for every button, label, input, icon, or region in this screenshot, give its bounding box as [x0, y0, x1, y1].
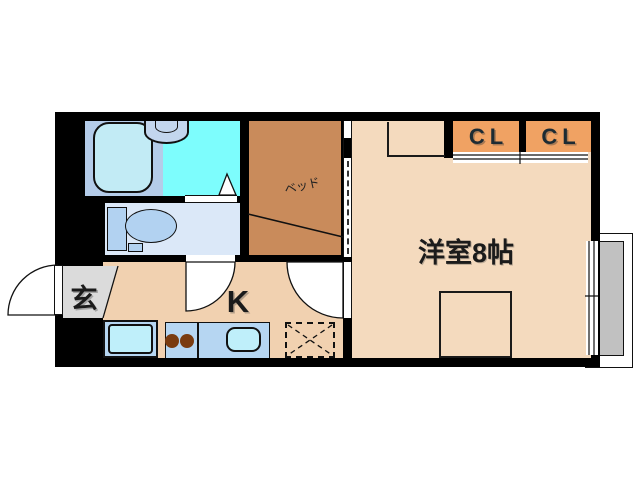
stove-burner: [165, 334, 179, 348]
wall-stub: [444, 121, 453, 158]
closet-left-label: CL: [464, 124, 508, 150]
kitchen-sink: [226, 327, 261, 352]
partition-dashed-line: [347, 161, 349, 254]
kitchen-label: K: [214, 284, 262, 320]
toilet-flush-handle: [128, 243, 143, 252]
partition-wall-stub: [344, 138, 351, 158]
kitchen-room-door: [343, 262, 352, 318]
closet-right-label: CL: [536, 124, 580, 150]
room-nook-outline: [387, 122, 445, 157]
washing-machine-pan-inner: [108, 324, 153, 354]
wash-basin-bowl: [155, 121, 178, 133]
western-room-label: 洋室8帖: [366, 231, 566, 270]
balcony-floor: [598, 241, 624, 356]
floor-plan: CL CL 玄 K 洋室8帖 ベッド: [0, 0, 638, 480]
refrigerator-space: [285, 322, 335, 358]
stove-burner: [180, 334, 194, 348]
toilet-door-opening: [186, 255, 235, 262]
toilet-bowl: [125, 209, 177, 243]
wall-stub: [519, 121, 526, 152]
floor-square-outline: [439, 291, 512, 358]
front-door-swing: [8, 265, 58, 315]
entrance-label: 玄: [62, 277, 106, 316]
balcony-window: [586, 241, 598, 355]
bathroom-sliding-door: [185, 195, 237, 203]
closet-left: CL: [453, 121, 519, 152]
closet-right: CL: [526, 121, 591, 152]
bed-partition: [343, 121, 352, 257]
closet-sliding-doors: [453, 152, 588, 163]
toilet-tank: [107, 207, 127, 251]
